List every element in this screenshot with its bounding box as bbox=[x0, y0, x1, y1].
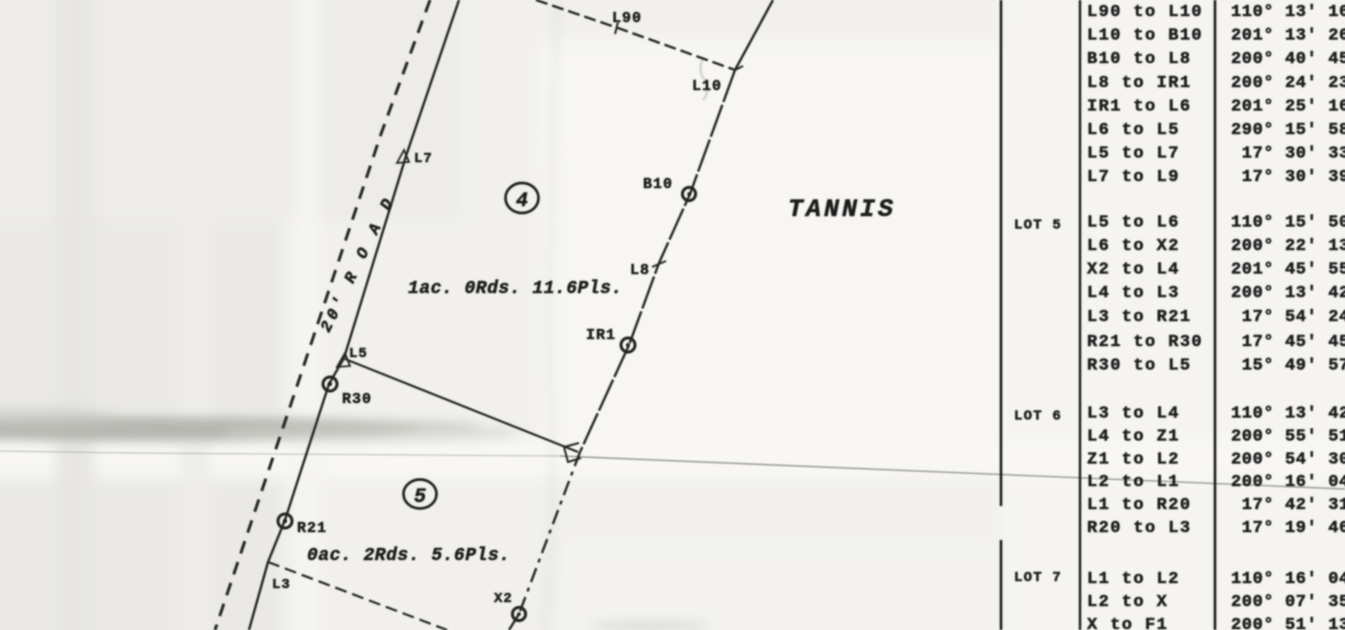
svg-text:IR1: IR1 bbox=[586, 327, 616, 344]
svg-text:200° 40' 45: 200° 40' 45 bbox=[1231, 50, 1345, 69]
svg-text:110° 13' 42: 110° 13' 42 bbox=[1231, 405, 1345, 424]
svg-text:5: 5 bbox=[414, 486, 426, 509]
svg-text:200° 51' 13: 200° 51' 13 bbox=[1231, 616, 1345, 630]
svg-text:L4 to Z1: L4 to Z1 bbox=[1087, 428, 1180, 447]
svg-text:L1 to L2: L1 to L2 bbox=[1087, 570, 1180, 589]
svg-text:L90 to L10: L90 to L10 bbox=[1087, 3, 1203, 22]
svg-text:L5 to L6: L5 to L6 bbox=[1087, 214, 1180, 233]
svg-text:Z1 to L2: Z1 to L2 bbox=[1087, 451, 1180, 470]
svg-text:17° 30' 33: 17° 30' 33 bbox=[1231, 145, 1345, 164]
svg-text:200° 07' 35: 200° 07' 35 bbox=[1231, 593, 1345, 612]
svg-text:L4 to L3: L4 to L3 bbox=[1087, 284, 1180, 303]
svg-text:X2: X2 bbox=[494, 591, 513, 607]
svg-text:290° 15' 58: 290° 15' 58 bbox=[1231, 121, 1345, 140]
svg-text:201° 13' 26: 201° 13' 26 bbox=[1231, 27, 1345, 46]
svg-text:17° 30' 39: 17° 30' 39 bbox=[1231, 168, 1345, 187]
svg-text:R30: R30 bbox=[342, 391, 372, 408]
svg-text:110° 13' 16: 110° 13' 16 bbox=[1231, 3, 1345, 22]
svg-text:R20 to L3: R20 to L3 bbox=[1087, 519, 1191, 538]
svg-text:B10 to L8: B10 to L8 bbox=[1087, 50, 1191, 69]
svg-text:L10 to B10: L10 to B10 bbox=[1087, 27, 1203, 46]
svg-text:L5: L5 bbox=[349, 346, 368, 362]
svg-text:L7 to L9: L7 to L9 bbox=[1087, 168, 1180, 187]
svg-text:L2 to X: L2 to X bbox=[1087, 593, 1168, 612]
svg-text:L6 to L5: L6 to L5 bbox=[1087, 121, 1180, 140]
svg-text:17° 19' 46: 17° 19' 46 bbox=[1231, 519, 1345, 538]
svg-text:200° 54' 30: 200° 54' 30 bbox=[1231, 451, 1345, 470]
svg-text:200° 24' 23: 200° 24' 23 bbox=[1231, 74, 1345, 93]
svg-text:R21 to R30: R21 to R30 bbox=[1087, 333, 1203, 352]
svg-text:200° 55' 51: 200° 55' 51 bbox=[1231, 428, 1345, 447]
svg-text:L90: L90 bbox=[612, 10, 642, 27]
svg-text:17° 45' 45: 17° 45' 45 bbox=[1231, 333, 1345, 352]
svg-text:LOT 6: LOT 6 bbox=[1014, 409, 1062, 425]
svg-text:TANNIS: TANNIS bbox=[788, 195, 896, 224]
svg-text:200° 22' 13: 200° 22' 13 bbox=[1231, 237, 1345, 256]
svg-text:L2 to L1: L2 to L1 bbox=[1087, 473, 1180, 492]
svg-text:R21: R21 bbox=[297, 520, 327, 537]
svg-text:LOT 5: LOT 5 bbox=[1014, 218, 1062, 234]
svg-text:4: 4 bbox=[516, 190, 528, 213]
svg-text:17° 42' 31: 17° 42' 31 bbox=[1231, 496, 1345, 515]
svg-text:17° 54' 24: 17° 54' 24 bbox=[1231, 308, 1345, 327]
svg-text:L5 to L7: L5 to L7 bbox=[1087, 145, 1180, 164]
svg-text:L3: L3 bbox=[272, 577, 291, 593]
svg-text:L3 to L4: L3 to L4 bbox=[1087, 405, 1180, 424]
svg-text:X2 to L4: X2 to L4 bbox=[1087, 261, 1180, 280]
svg-text:200° 16' 04: 200° 16' 04 bbox=[1231, 473, 1345, 492]
svg-text:R30 to L5: R30 to L5 bbox=[1087, 357, 1191, 376]
svg-text:110° 16' 04: 110° 16' 04 bbox=[1231, 570, 1345, 589]
svg-text:L10: L10 bbox=[692, 78, 722, 95]
svg-text:201° 25' 16: 201° 25' 16 bbox=[1231, 97, 1345, 116]
svg-text:L6 to X2: L6 to X2 bbox=[1087, 237, 1180, 256]
svg-text:LOT 7: LOT 7 bbox=[1014, 570, 1062, 586]
svg-text:1ac. 0Rds. 11.6Pls.: 1ac. 0Rds. 11.6Pls. bbox=[408, 279, 623, 299]
svg-text:0ac. 2Rds. 5.6Pls.: 0ac. 2Rds. 5.6Pls. bbox=[307, 546, 510, 566]
svg-text:X to F1: X to F1 bbox=[1087, 616, 1168, 630]
svg-text:L8 to IR1: L8 to IR1 bbox=[1087, 74, 1191, 93]
svg-text:201° 45' 55: 201° 45' 55 bbox=[1231, 261, 1345, 280]
svg-text:IR1 to L6: IR1 to L6 bbox=[1087, 97, 1191, 116]
svg-text:L3 to R21: L3 to R21 bbox=[1087, 308, 1191, 327]
svg-text:15° 49' 57: 15° 49' 57 bbox=[1231, 357, 1345, 376]
svg-text:L1 to R20: L1 to R20 bbox=[1087, 496, 1191, 515]
svg-text:L7: L7 bbox=[414, 151, 433, 167]
svg-text:200° 13' 42: 200° 13' 42 bbox=[1231, 284, 1345, 303]
svg-text:B10: B10 bbox=[643, 176, 673, 193]
svg-text:L8: L8 bbox=[630, 262, 650, 279]
svg-text:110° 15' 50: 110° 15' 50 bbox=[1231, 214, 1345, 233]
